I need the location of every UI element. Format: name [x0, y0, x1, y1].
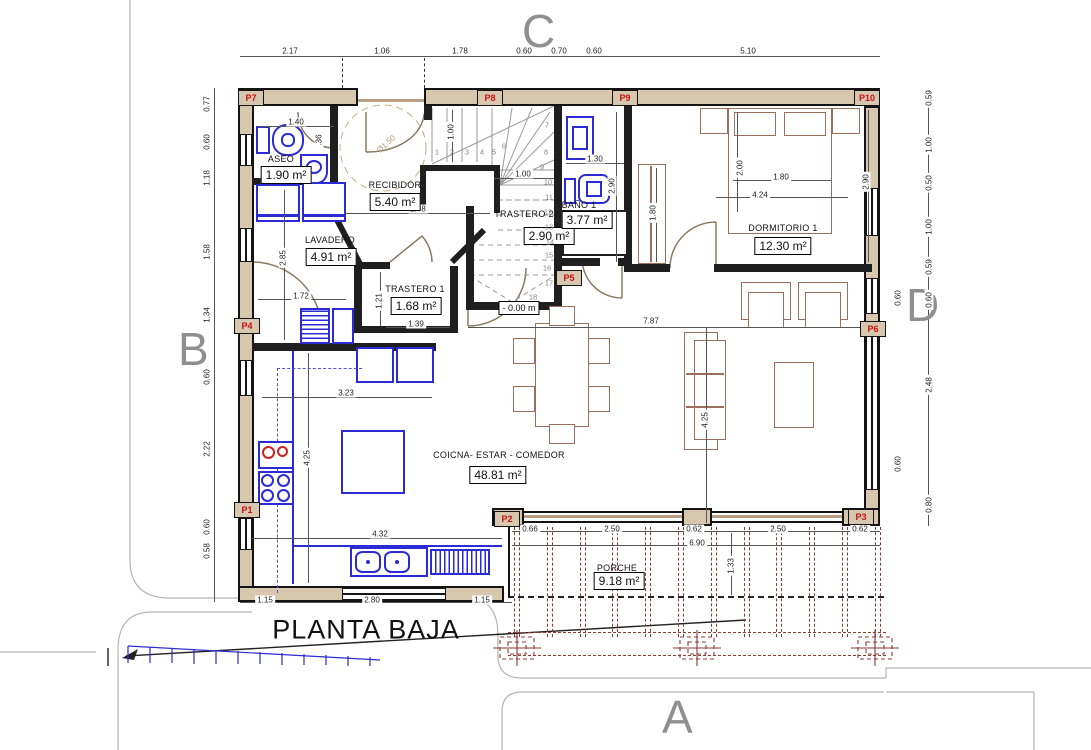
facade-sill-2: [712, 515, 842, 518]
porch-beam: [744, 527, 750, 637]
point-marker-p3: P3: [848, 509, 874, 525]
plan-title: PLANTA BAJA: [272, 615, 460, 646]
dimension-label: 4.25: [701, 410, 710, 430]
porch-beam: [711, 527, 717, 637]
porch-boundary-dashed: [508, 596, 884, 598]
porch-beam: [842, 527, 848, 637]
window-left-4: [240, 518, 252, 550]
dimension-label: 3.23: [336, 389, 356, 398]
dimension-label: 1.40: [286, 118, 306, 127]
wall-trastero1-left: [354, 266, 362, 332]
dimension-label: 2.48: [925, 375, 934, 395]
wall-bano-bottom-a: [554, 258, 600, 266]
room-area-ba-o-1: 3.77 m²: [562, 211, 613, 229]
sliding-door-right: [866, 332, 878, 490]
dimension-label: 1.21: [375, 291, 384, 311]
dimension-label: 0.59: [925, 257, 934, 277]
pillar-bottom-mid: [682, 508, 712, 526]
dimension-label: 5.10: [738, 47, 758, 56]
dimension-label: 4.25: [303, 448, 312, 468]
dimension-label: 1.00: [925, 217, 934, 237]
hob-ring-blue-3: [261, 489, 274, 502]
dining-chair-bottom: [549, 424, 575, 444]
washer-2-line: [304, 214, 344, 217]
point-marker-p7: P7: [238, 90, 264, 106]
porch-beamline-2: [508, 655, 886, 656]
hob-ring-blue-1: [261, 474, 274, 487]
dimension-label: 2.90: [862, 172, 871, 192]
stair-step-number: 17: [545, 279, 553, 288]
facade-line-4: [712, 521, 842, 523]
turning-circle-label: Ø1.50: [375, 133, 397, 154]
room-area-coicna-estar-comedor: 48.81 m²: [469, 466, 526, 484]
dimension-label: 2.00: [736, 158, 745, 178]
facade-line-2: [524, 521, 682, 523]
armchair-1-seat: [748, 292, 784, 328]
stair-step-number: 13: [545, 223, 553, 232]
stair-step-number: 1: [435, 148, 439, 157]
dimension-label: 1.15: [255, 596, 275, 605]
facade-line-1: [524, 511, 682, 513]
sofa-cushion-line-1: [686, 373, 724, 375]
room-area-porche: 9.18 m²: [594, 572, 645, 590]
sink-drain-2: [395, 560, 399, 564]
porch-left-edge: [508, 526, 510, 598]
laundry-rack: [300, 308, 330, 344]
point-marker-p4: P4: [234, 318, 260, 334]
dimension-label: 2.85: [279, 248, 288, 268]
window-left-2: [240, 228, 252, 262]
hob-ring-blue-4: [277, 489, 290, 502]
dimension-label: 2.50: [602, 525, 622, 534]
room-area-trastero-1: 1.68 m²: [391, 297, 442, 315]
dimension-label: 1.00: [447, 122, 456, 142]
fridge-2: [396, 347, 434, 383]
porch-beam: [580, 527, 586, 637]
dimension-label: 1.18: [203, 168, 212, 188]
porch-beam: [809, 527, 815, 637]
diagonal-walls: [334, 214, 484, 264]
sofa-seat: [694, 340, 726, 440]
dim-line-787: [468, 327, 865, 328]
porch-beam: [678, 527, 684, 637]
dimension-label: 1.58: [203, 242, 212, 262]
dimension-label: 0.70: [549, 47, 569, 56]
stair-step-number: 15: [545, 251, 553, 260]
entry-threshold: [358, 99, 424, 102]
dimension-label: 2.90: [608, 176, 617, 196]
stair-step-number: 8: [544, 148, 548, 157]
wall-bano-bottom-b: [618, 258, 632, 266]
bano-toilet-bowl-inner: [586, 181, 602, 197]
room-label-lavadero: LAVADERO: [305, 235, 355, 245]
dimension-label: 0.58: [203, 541, 212, 561]
dimension-label: 1.33: [727, 556, 736, 576]
dimension-label: 0.62: [684, 525, 704, 534]
pillow-right: [784, 112, 826, 136]
stair-step-number: 2: [450, 148, 454, 157]
room-label-recibidor: RECIBIDOR: [369, 180, 422, 190]
dimension-label: 7.87: [641, 317, 661, 326]
footing-axes: [493, 630, 899, 666]
dining-chair-right-1: [588, 338, 610, 364]
dimension-label: 2.50: [768, 525, 788, 534]
wall-trastero1-top: [354, 262, 390, 269]
nightstand-left: [700, 108, 728, 134]
wall-trastero2-left: [466, 206, 474, 306]
point-marker-p1: P1: [234, 502, 260, 518]
room-label-ba-o-1: BAÑO 1: [562, 200, 597, 210]
stair-step-number: 6: [502, 142, 506, 151]
porch-beamline-1: [508, 632, 886, 633]
stair-step-number: 5: [492, 148, 496, 157]
armchair-2-seat: [805, 292, 841, 328]
laundry-box: [332, 308, 354, 344]
dimension-label: 0.60: [894, 454, 903, 474]
wall-dorm-bottom-a: [632, 264, 670, 272]
dimension-label: 0.62: [850, 525, 870, 534]
wall-dorm-bottom-b: [714, 264, 872, 272]
stair-step-number: 11: [545, 193, 553, 202]
stair-step-number: 9: [540, 163, 544, 172]
dimension-label: 6.90: [687, 539, 707, 548]
dimension-label: 0.66: [520, 525, 540, 534]
dimension-label: 0.80: [925, 495, 934, 515]
porch-beam: [645, 527, 651, 637]
dimension-label: 0.60: [925, 290, 934, 310]
stair-newel-closet: [420, 165, 500, 213]
grid-letter-b: B: [178, 326, 209, 372]
dining-table: [535, 323, 589, 427]
point-marker-p2: P2: [494, 511, 520, 527]
dimension-label: 1.00: [513, 170, 533, 179]
hob-ring-blue-2: [277, 474, 290, 487]
facade-sill-1: [524, 515, 682, 518]
porch-beam: [514, 527, 520, 637]
room-label-aseo: ASEO: [268, 154, 294, 164]
washer-1-line: [258, 214, 298, 217]
room-area-aseo: 1.90 m²: [261, 166, 312, 184]
facade-line-3: [712, 511, 842, 513]
stair-step-number: 4: [480, 148, 484, 157]
floor-plan-canvas: C B D A PLANTA BAJA - 0.00 m Ø1.50 2.171…: [0, 0, 1091, 750]
dimension-label: 0.59: [925, 88, 934, 108]
sofa-cushion-line-2: [686, 406, 724, 408]
ext-line-entry-2: [424, 58, 425, 88]
dining-chair-right-2: [588, 386, 610, 412]
dimension-label: 1.39: [406, 320, 426, 329]
dining-chair-top: [549, 306, 575, 326]
point-marker-p8: P8: [477, 90, 503, 106]
sink-drain-1: [366, 560, 370, 564]
window-right-2: [866, 278, 878, 314]
room-area-recibidor: 5.40 m²: [370, 193, 421, 211]
dim-chain-left: [214, 88, 215, 602]
dimension-label: 1.72: [291, 292, 311, 301]
sink-drainer: [430, 549, 490, 575]
dimension-label: 1.80: [649, 203, 658, 223]
wall-stairs-entry: [424, 106, 432, 120]
dining-chair-left-1: [513, 338, 535, 364]
window-left-3: [240, 360, 252, 396]
wall-top-mid: [424, 88, 615, 106]
porch-beam: [776, 527, 782, 637]
dimension-label: 0.60: [894, 288, 903, 308]
hob-ring-red-1: [262, 446, 275, 459]
dimension-label: 0.60: [203, 132, 212, 152]
hob-ring-red-2: [277, 446, 288, 457]
dimension-label: 2.22: [203, 439, 212, 459]
dimension-label: 0.77: [203, 94, 212, 114]
dimension-label: 1.00: [925, 135, 934, 155]
wall-top-right: [612, 88, 880, 106]
stair-step-number: 3: [465, 148, 469, 157]
dining-chair-left-2: [513, 386, 535, 412]
dimension-label: 1.06: [372, 47, 392, 56]
dimension-label: 1.78: [450, 47, 470, 56]
stair-step-number: 18: [529, 293, 537, 302]
point-marker-p5: P5: [556, 270, 582, 286]
stair-step-number: 7: [545, 121, 549, 130]
dimension-label: .36: [315, 132, 324, 147]
dimension-label: 2.80: [362, 596, 382, 605]
dimension-label: 1.80: [771, 173, 791, 182]
dimension-label: 1.15: [472, 596, 492, 605]
stair-step-number: 10: [544, 178, 552, 187]
porch-beam: [547, 527, 553, 637]
room-area-dormitorio-1: 12.30 m²: [754, 237, 811, 255]
bano-sink-inner: [572, 126, 588, 150]
window-left-1: [240, 134, 252, 166]
room-label-trastero-1: TRASTERO 1: [385, 284, 445, 294]
stair-step-number: 16: [543, 264, 551, 273]
point-marker-p6: P6: [860, 321, 886, 337]
wall-trastero1-right: [450, 266, 458, 332]
dimension-label: 1.30: [585, 155, 605, 164]
dimension-label: 2.17: [280, 47, 300, 56]
dimension-label: 0.60: [514, 47, 534, 56]
kitchen-island: [341, 430, 405, 494]
dimension-label: 0.60: [203, 367, 212, 387]
pillow-left: [734, 112, 776, 136]
dimension-label: 0.60: [584, 47, 604, 56]
dim-line-424: [716, 197, 848, 198]
nightstand-right: [832, 108, 860, 134]
dimension-label: 0.50: [925, 173, 934, 193]
grid-letter-d: D: [906, 282, 939, 328]
level-marker: - 0.00 m: [498, 301, 539, 315]
dim-line-425-kitchen: [308, 353, 309, 583]
porch-beam: [875, 527, 881, 637]
room-label-coicna-estar-comedor: COICNA- ESTAR - COMEDOR: [433, 450, 565, 460]
room-area-lavadero: 4.91 m²: [306, 248, 357, 266]
dim-chain-top: [240, 56, 880, 57]
dimension-label: 4.32: [370, 530, 390, 539]
ext-line-entry-1: [342, 58, 343, 88]
aseo-toilet-bowl-inner: [281, 133, 295, 147]
point-marker-p9: P9: [612, 90, 638, 106]
stair-step-number: 14: [546, 238, 554, 247]
stair-step-number: 12: [544, 208, 552, 217]
coffee-table: [774, 362, 814, 428]
grid-letter-a: A: [662, 694, 693, 740]
dimension-label: 0.60: [203, 517, 212, 537]
point-marker-p10: P10: [854, 90, 880, 106]
aseo-toilet-tank: [256, 126, 270, 154]
dimension-label: 4.24: [750, 191, 770, 200]
room-label-dormitorio-1: DORMITORIO 1: [748, 223, 817, 233]
dimension-label: 1.34: [203, 305, 212, 325]
